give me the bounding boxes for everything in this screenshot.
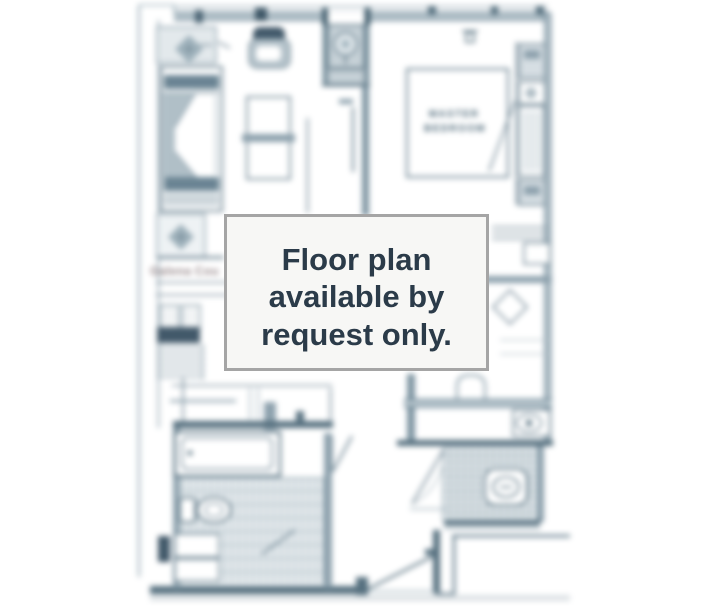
svg-text:Galena Cou: Galena Cou [150, 266, 219, 278]
svg-text:MASTER: MASTER [429, 109, 480, 120]
svg-text:BEDROOM: BEDROOM [424, 124, 486, 135]
